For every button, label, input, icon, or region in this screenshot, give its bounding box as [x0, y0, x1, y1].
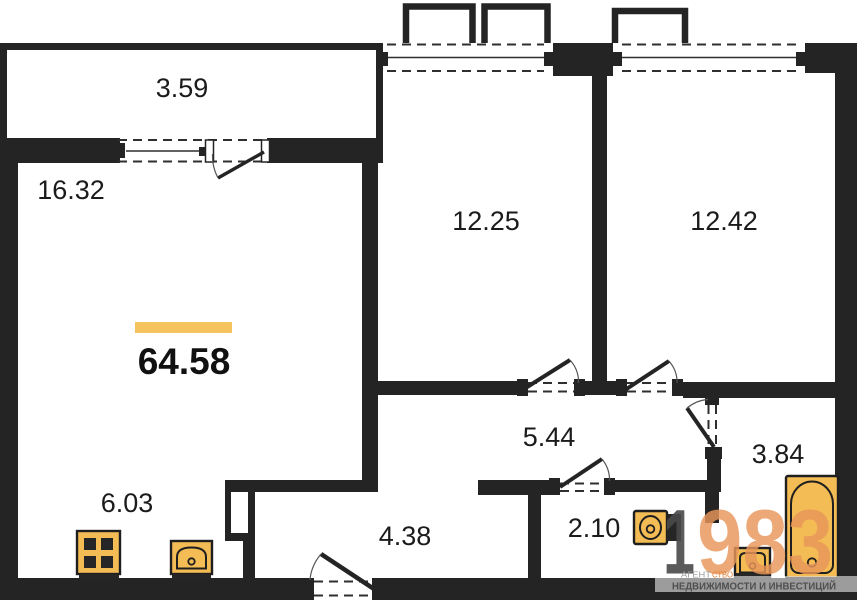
- wall-segment: [615, 480, 721, 492]
- bedroom1-door: [517, 360, 585, 396]
- wall-segment: [362, 150, 378, 492]
- room-label-balcony: 3.59: [156, 73, 209, 103]
- wall-segment: [585, 381, 616, 395]
- window-bedroom2: [613, 45, 805, 72]
- room-label-bedroom2: 12.42: [690, 206, 758, 236]
- room-label-bathroom: 3.84: [752, 439, 805, 469]
- wall-segment: [805, 43, 857, 73]
- balcony-outline: [485, 7, 548, 44]
- watermark-agency-suffix: СТВО: [712, 570, 733, 580]
- room-label-hallway: 5.44: [523, 422, 576, 452]
- balcony-door: [199, 140, 276, 178]
- window-bedroom1: [378, 45, 553, 72]
- wall-segment: [10, 138, 120, 163]
- bathroom-door: [687, 393, 722, 459]
- floor-plan: 3.59 16.32 12.25 12.42 5.44 3.84 2.10 4.…: [0, 0, 857, 600]
- wall-segment: [225, 480, 373, 492]
- window-balcony: [112, 140, 268, 162]
- room-label-bedroom1: 12.25: [452, 206, 520, 236]
- room-label-corridor: 4.38: [379, 521, 432, 551]
- wall-segment: [592, 73, 607, 393]
- upper-balcony-outlines: [406, 7, 685, 44]
- wall-segment: [243, 541, 255, 578]
- wall-segment: [0, 43, 383, 50]
- room-label-living: 16.32: [37, 175, 105, 205]
- wall-segment: [553, 43, 613, 76]
- wall-segment: [267, 138, 376, 163]
- room-labels: 3.59 16.32 12.25 12.42 5.44 3.84 2.10 4.…: [37, 73, 804, 551]
- balcony-outline: [615, 11, 685, 43]
- wall-segment: [0, 43, 7, 138]
- watermark-tagline: НЕДВИЖИМОСТИ И ИНВЕСТИЦИЙ: [672, 580, 836, 593]
- agency-watermark: 1 983 АГЕНТ СТВО НЕДВИЖИМОСТИ И ИНВЕСТИЦ…: [655, 492, 857, 594]
- total-area-accent-bar: [135, 322, 232, 333]
- windows: [112, 45, 805, 162]
- balcony-outline: [406, 7, 473, 44]
- wc-door: [549, 459, 615, 495]
- duct-shaft-bottom: [225, 533, 255, 541]
- entrance-door: [303, 554, 384, 600]
- bedroom2-door: [616, 361, 683, 396]
- total-area-label: 64.58: [138, 341, 231, 382]
- room-label-kitchen: 6.03: [101, 488, 154, 518]
- watermark-agency-prefix: АГЕНТ: [681, 570, 711, 580]
- floor-plan-canvas: 3.59 16.32 12.25 12.42 5.44 3.84 2.10 4.…: [0, 0, 857, 600]
- room-label-wc: 2.10: [568, 513, 621, 543]
- stove-icon: [77, 531, 120, 580]
- wall-segment: [528, 492, 541, 578]
- kitchen-sink-icon: [171, 541, 212, 580]
- wall-segment: [0, 138, 18, 600]
- wall-segment: [378, 381, 518, 395]
